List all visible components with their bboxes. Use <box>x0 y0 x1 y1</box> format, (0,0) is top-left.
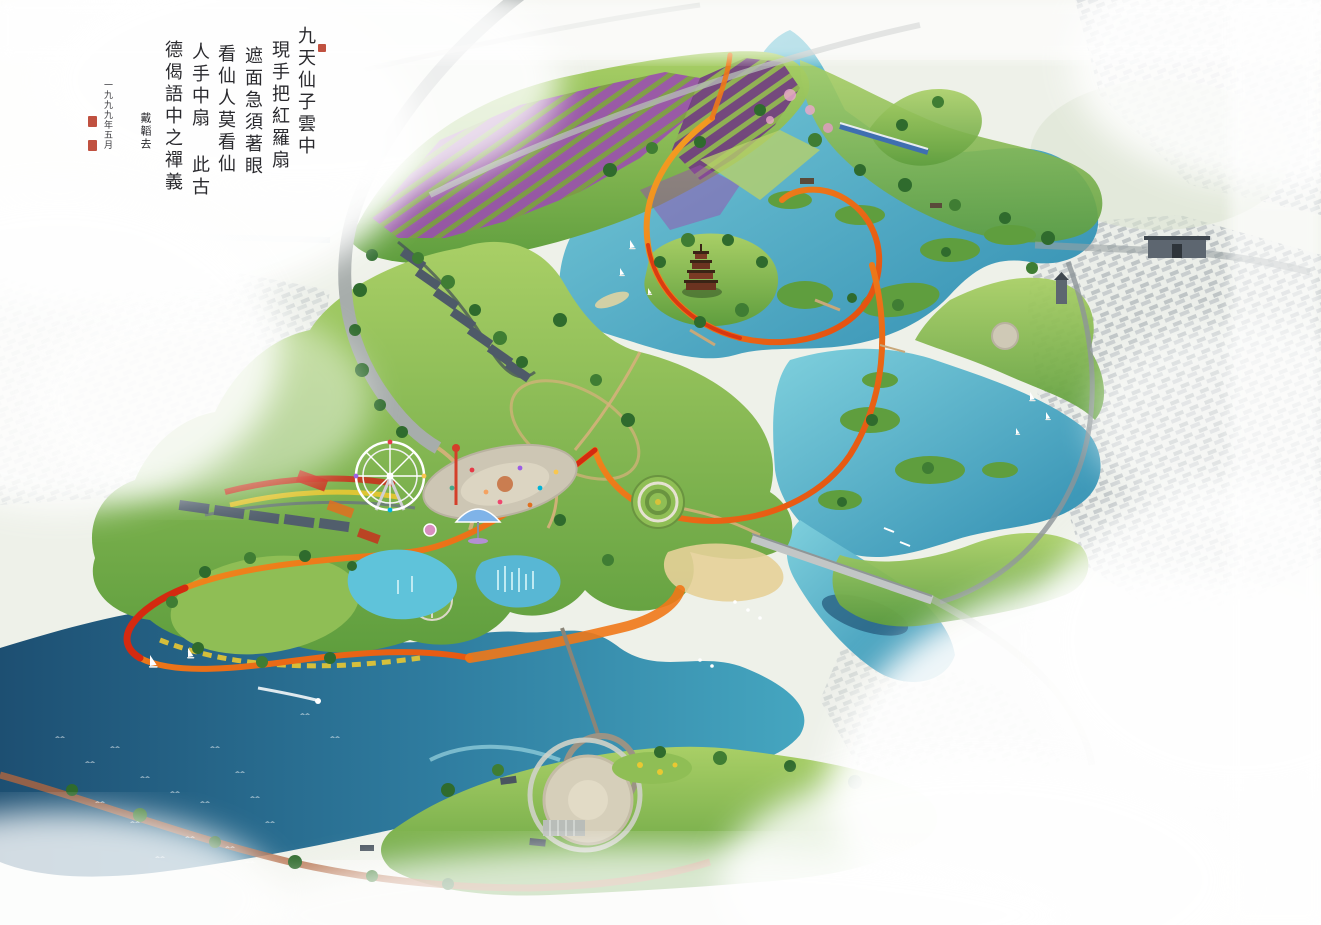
blossom-cluster <box>784 89 796 101</box>
island-pavilion <box>930 203 942 208</box>
parking-lot <box>543 820 585 836</box>
island-pavilion <box>800 178 814 184</box>
islet <box>984 225 1036 245</box>
carousel-ride <box>424 524 436 536</box>
parterre-garden-east <box>632 476 684 528</box>
park-aerial-rendering: 九天仙子雲中 現手把紅羅扇 遮面急須著眼 看仙人莫看仙 人手中扇 此古 德偈語中… <box>0 0 1321 925</box>
village-gate <box>1144 238 1210 258</box>
blossom-cluster <box>805 105 815 115</box>
south-pavilion <box>360 845 374 851</box>
blossom-cluster <box>766 116 774 124</box>
scene-canvas <box>0 0 1321 925</box>
pagoda-island <box>644 233 778 326</box>
flower-knoll <box>612 752 692 784</box>
east-circle-plaza <box>992 323 1018 349</box>
blossom-cluster <box>823 123 833 133</box>
plaza-center-motif <box>497 476 513 492</box>
islet <box>982 462 1018 478</box>
